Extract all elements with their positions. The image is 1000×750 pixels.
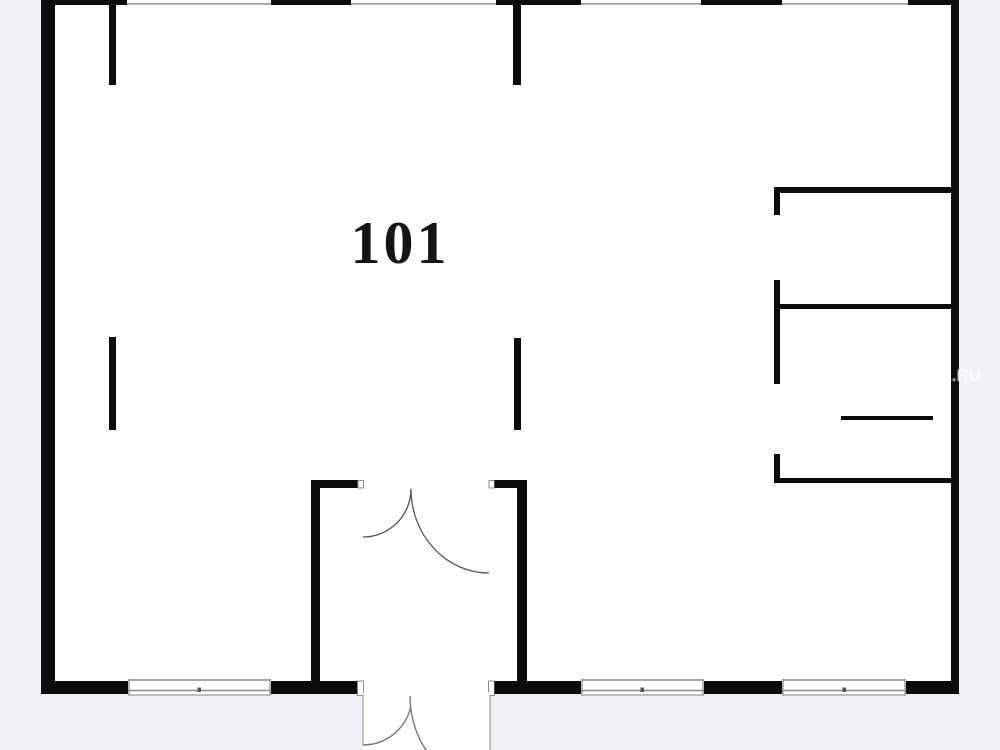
svg-text:101: 101 bbox=[351, 210, 450, 276]
svg-text:ПЛАНИРОВКА.RU: ПЛАНИРОВКА.RU bbox=[832, 366, 981, 385]
